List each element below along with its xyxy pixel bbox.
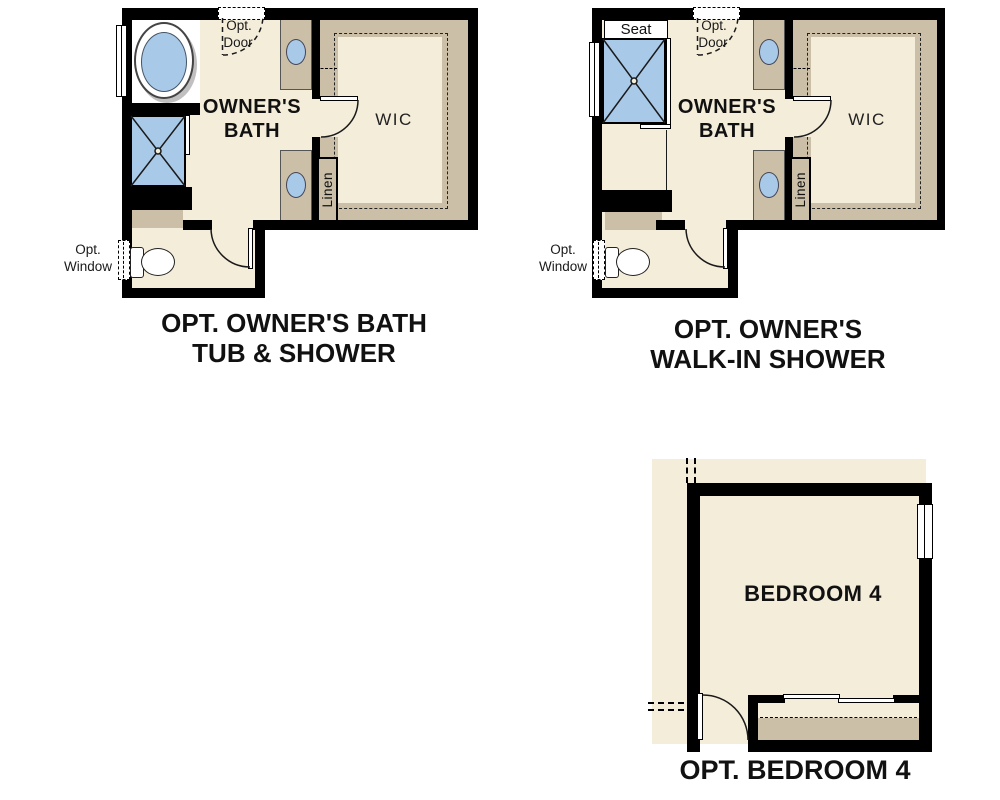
toilet-bowl <box>616 248 650 276</box>
opt-door-label-line1: Opt. <box>701 17 727 34</box>
opt-door-label-line2: Door <box>223 34 252 51</box>
opt-window-mullion <box>598 242 599 278</box>
opt-window-label-line1: Opt. <box>75 241 101 258</box>
room-name-line1: OWNER'S <box>203 95 301 119</box>
opt-window-label-line2: Window <box>64 258 112 275</box>
wall-toilet-right <box>255 228 265 298</box>
sink-bottom <box>286 172 306 198</box>
opt-door-label-line1: Opt. <box>226 17 252 34</box>
opt-window <box>118 240 130 280</box>
floorplan-sheet: OWNER'S BATH WIC Linen Opt. Door Opt. Wi… <box>0 0 1000 800</box>
wall-top <box>687 483 932 496</box>
wall-top <box>122 8 478 20</box>
wall-bottom <box>748 739 932 752</box>
wall-top <box>592 8 945 20</box>
opt-window-label-line2: Window <box>539 258 587 275</box>
wic-label: WIC <box>848 110 886 130</box>
closet-shelf-dashed-line <box>760 717 917 718</box>
toilet-room-ledge <box>605 212 662 230</box>
bedroom-room-label: BEDROOM 4 <box>744 582 882 606</box>
plan-caption-line2: WALK-IN SHOWER <box>650 344 885 374</box>
opt-wall-dash-left-1 <box>648 702 684 704</box>
wall-bath-bottom-left <box>183 220 212 230</box>
shower <box>130 115 186 187</box>
wall-bath-bottom-right <box>726 220 945 230</box>
linen-label: Linen <box>793 172 808 208</box>
wall-bath-bottom-left <box>656 220 685 230</box>
linen-closet: Linen <box>317 157 338 222</box>
wall-toilet-bottom <box>122 288 265 298</box>
bedroom-caption: OPT. BEDROOM 4 <box>679 755 910 785</box>
wall-wic-upper <box>312 20 320 99</box>
opt-window <box>593 240 605 280</box>
walk-in-shower <box>602 38 666 124</box>
wic-door-opening <box>312 99 340 137</box>
shower-glass-door <box>185 115 190 155</box>
sink-bottom <box>759 172 779 198</box>
wic-door-leaf <box>793 96 831 101</box>
bedroom-door-leaf <box>697 693 703 740</box>
wall-toilet-bottom <box>592 288 738 298</box>
tub-basin <box>141 32 187 92</box>
plan-caption-line1: OPT. OWNER'S BATH <box>161 308 427 338</box>
opt-wall-dash-top-1 <box>686 458 688 483</box>
wic-door-opening <box>785 99 813 137</box>
toilet-door-leaf <box>723 228 728 269</box>
opt-window-label-line1: Opt. <box>550 241 576 258</box>
room-name-line2: BATH <box>699 119 755 143</box>
wall-right <box>468 8 478 230</box>
bedroom-window <box>917 504 933 559</box>
wall-block-below-shower <box>122 187 192 210</box>
closet-front-wall-right <box>893 695 919 703</box>
sink-top <box>759 39 779 65</box>
opt-wall-dash-top-2 <box>694 458 696 483</box>
wall-under-tub <box>122 103 200 115</box>
opt-window-mullion <box>123 242 124 278</box>
shower-seat: Seat <box>604 20 668 39</box>
shower-glass-right <box>666 38 671 128</box>
wall-block-below-shower <box>592 190 672 212</box>
shower-window-mullion <box>594 43 595 116</box>
wic-label: WIC <box>375 110 413 130</box>
room-name-line1: OWNER'S <box>678 95 776 119</box>
wall-toilet-right <box>728 228 738 298</box>
wall-wic-upper <box>785 20 793 99</box>
closet-shelf <box>758 718 919 740</box>
wall-bath-bottom-right <box>253 220 478 230</box>
wall-right <box>937 8 945 230</box>
linen-closet: Linen <box>790 157 811 222</box>
closet-sliding-door-1 <box>783 694 840 699</box>
plan-caption-line2: TUB & SHOWER <box>192 338 396 368</box>
room-name-line2: BATH <box>224 119 280 143</box>
toilet-room-ledge <box>130 210 183 228</box>
bedroom-window-mullion <box>924 505 925 558</box>
opt-door-label-line2: Door <box>698 34 727 51</box>
linen-label: Linen <box>320 172 335 208</box>
shower-glass-bottom <box>640 124 671 129</box>
tub-window-mullion <box>121 26 122 96</box>
opt-wall-dash-left-2 <box>648 709 684 711</box>
plan-caption-line1: OPT. OWNER'S <box>674 314 862 344</box>
seat-label: Seat <box>621 21 652 38</box>
closet-front-wall-left <box>758 695 785 703</box>
toilet-bowl <box>141 248 175 276</box>
sink-top <box>286 39 306 65</box>
closet-sliding-door-2 <box>838 698 895 703</box>
toilet-door-leaf <box>248 228 253 269</box>
closet-wall-left <box>748 695 758 752</box>
wic-door-leaf <box>320 96 358 101</box>
wall-bottom-left-stub <box>687 739 700 752</box>
